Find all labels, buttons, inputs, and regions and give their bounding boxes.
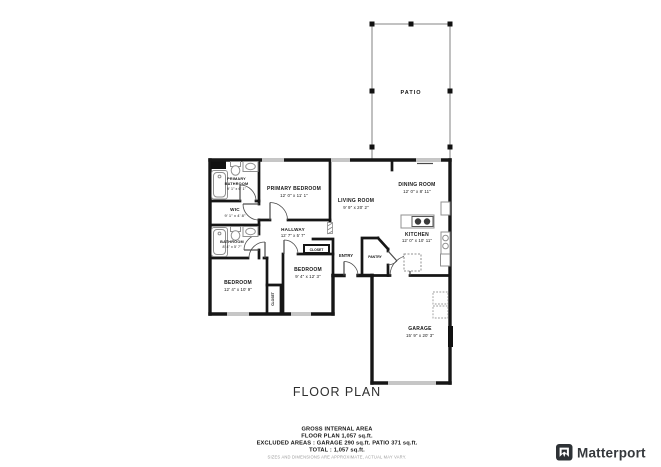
room-label-primary-bathroom: PRIMARY: [227, 177, 246, 181]
room-dims-bedroom-middle: 9' 4" x 12' 3": [295, 274, 321, 279]
toilet-icon: [231, 227, 241, 241]
floor-plan-canvas: PATIO PRIMARY BATHROOM 9' 1" x 6' 1" WIC…: [0, 0, 661, 467]
sink-icon: [243, 227, 258, 237]
footer-total-area: TOTAL : 1,057 sq.ft.: [309, 448, 365, 454]
footer-gross-area: GROSS INTERNAL AREA: [301, 427, 372, 433]
room-label-bathroom: BATHROOM: [220, 240, 244, 244]
room-label-dining-room: DINING ROOM: [398, 182, 435, 188]
room-label-hallway: HALLWAY: [281, 227, 305, 232]
garage-equipment: [433, 292, 448, 318]
sink-icon: [243, 162, 258, 172]
footer-excluded-areas: EXCLUDED AREAS : GARAGE 290 sq.ft. PATIO…: [257, 441, 418, 447]
toilet-icon: [231, 162, 241, 176]
room-label-primary-bathroom-2: BATHROOM: [225, 182, 249, 186]
room-label-closet-hallway: CLOSET: [310, 248, 325, 252]
shower-wall: [211, 162, 226, 170]
room-label-garage: GARAGE: [408, 326, 432, 332]
garage-side-door: [448, 326, 453, 347]
kitchen-sink-icon: [441, 232, 451, 266]
room-label-bedroom-middle: BEDROOM: [294, 267, 322, 273]
room-label-living-room: LIVING ROOM: [338, 198, 374, 204]
room-dims-living-room: 9' 9" x 20' 2": [343, 205, 369, 210]
room-label-closet-bedroom: CLOSET: [271, 291, 275, 306]
matterport-wordmark: Matterport: [577, 446, 646, 461]
room-dims-wic: 9' 1" x 4' 8": [224, 213, 245, 218]
footer-disclaimer: SIZES AND DIMENSIONS ARE APPROXIMATE, AC…: [268, 455, 407, 460]
refrigerator-icon: [404, 254, 421, 271]
room-label-entry: ENTRY: [339, 253, 353, 258]
floor-plan-page: PATIO PRIMARY BATHROOM 9' 1" x 6' 1" WIC…: [0, 0, 661, 467]
matterport-logo: Matterport: [556, 444, 646, 461]
footer-floor-plan-area: FLOOR PLAN 1,057 sq.ft.: [301, 434, 373, 440]
room-dims-dining-room: 12' 0" x 8' 11": [403, 189, 431, 194]
room-dims-bathroom: 8' 4" x 5' 7": [222, 245, 242, 249]
room-dims-primary-bathroom: 9' 1" x 6' 1": [227, 187, 247, 191]
room-dims-hallway: 12' 7" x 5' 7": [281, 233, 306, 238]
matterport-icon: [556, 444, 573, 461]
stove-icon: [401, 215, 434, 228]
room-label-wic: WIC: [230, 207, 240, 212]
vent-hatch: [328, 223, 333, 235]
room-dims-kitchen: 12' 0" x 10' 11": [402, 238, 433, 243]
room-label-bedroom-left: BEDROOM: [224, 280, 252, 286]
patio-posts: [370, 22, 453, 150]
room-dims-bedroom-left: 12' 4" x 10' 9": [224, 287, 252, 292]
room-dims-garage: 15' 9" x 20' 3": [406, 333, 434, 338]
room-dims-primary-bedroom: 12' 0" x 11' 1": [280, 193, 308, 198]
room-label-patio: PATIO: [401, 90, 422, 96]
upper-counter: [441, 202, 450, 215]
room-label-pantry: PANTRY: [368, 255, 382, 259]
page-title: FLOOR PLAN: [293, 385, 381, 399]
door-arcs: [240, 185, 410, 276]
room-label-primary-bedroom: PRIMARY BEDROOM: [267, 186, 321, 192]
